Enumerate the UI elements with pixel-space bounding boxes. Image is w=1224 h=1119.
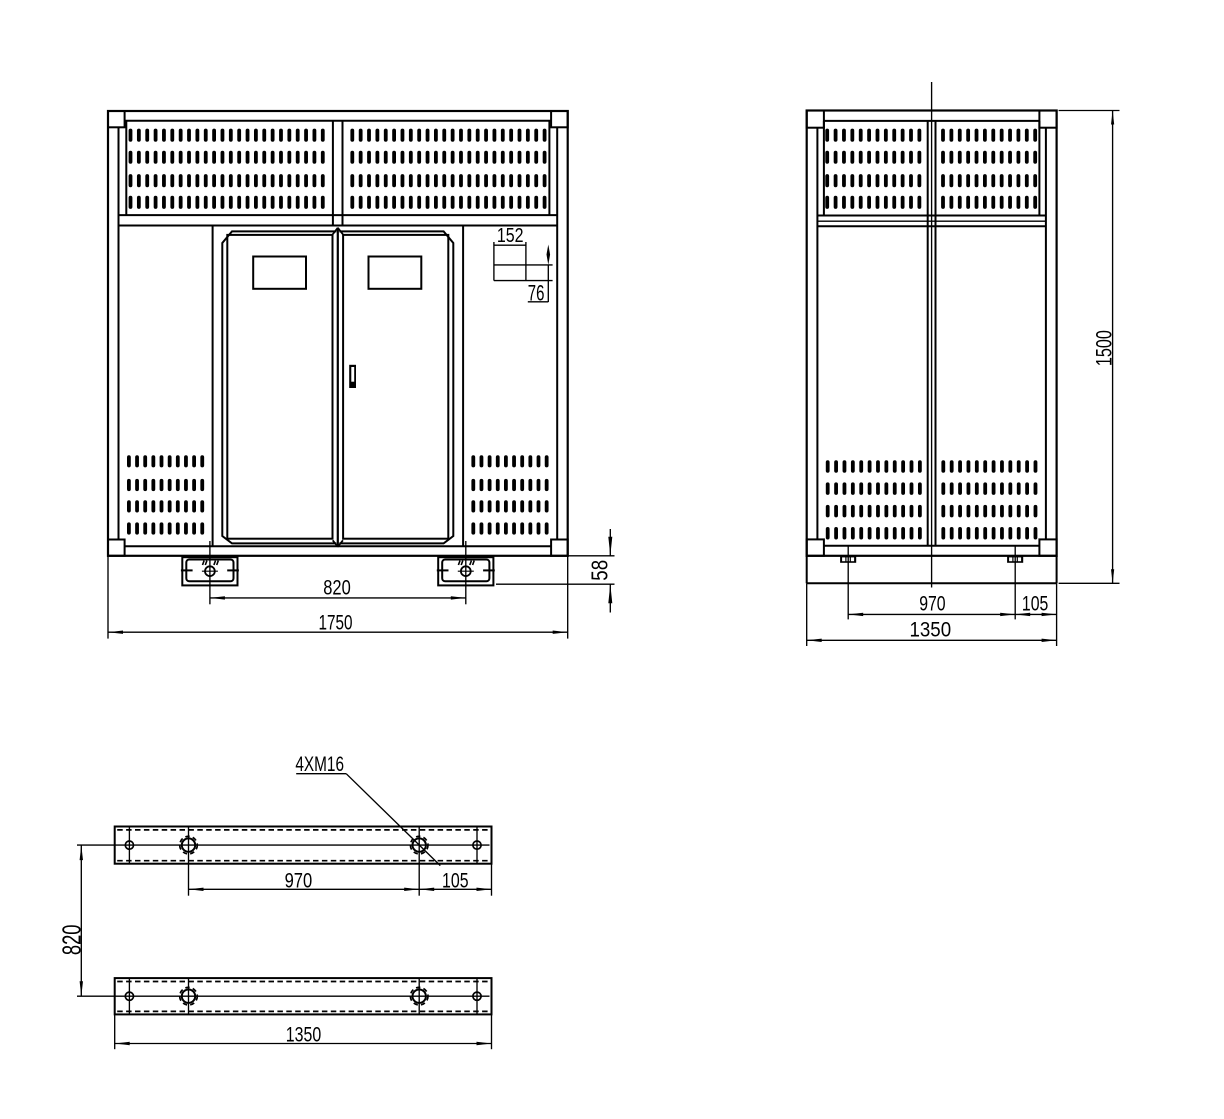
svg-text:105: 105 (442, 868, 469, 892)
svg-text:970: 970 (919, 592, 945, 616)
svg-text:1350: 1350 (909, 618, 951, 642)
svg-text:970: 970 (285, 868, 313, 892)
svg-text:58: 58 (586, 560, 612, 581)
svg-text:1350: 1350 (286, 1022, 321, 1046)
svg-text:152: 152 (497, 224, 524, 247)
svg-text:4XM16: 4XM16 (295, 752, 344, 776)
svg-text:1500: 1500 (1091, 330, 1116, 366)
svg-text:1750: 1750 (319, 611, 353, 635)
svg-text:105: 105 (1022, 592, 1048, 616)
svg-text:820: 820 (323, 575, 351, 599)
svg-text:820: 820 (57, 925, 87, 956)
